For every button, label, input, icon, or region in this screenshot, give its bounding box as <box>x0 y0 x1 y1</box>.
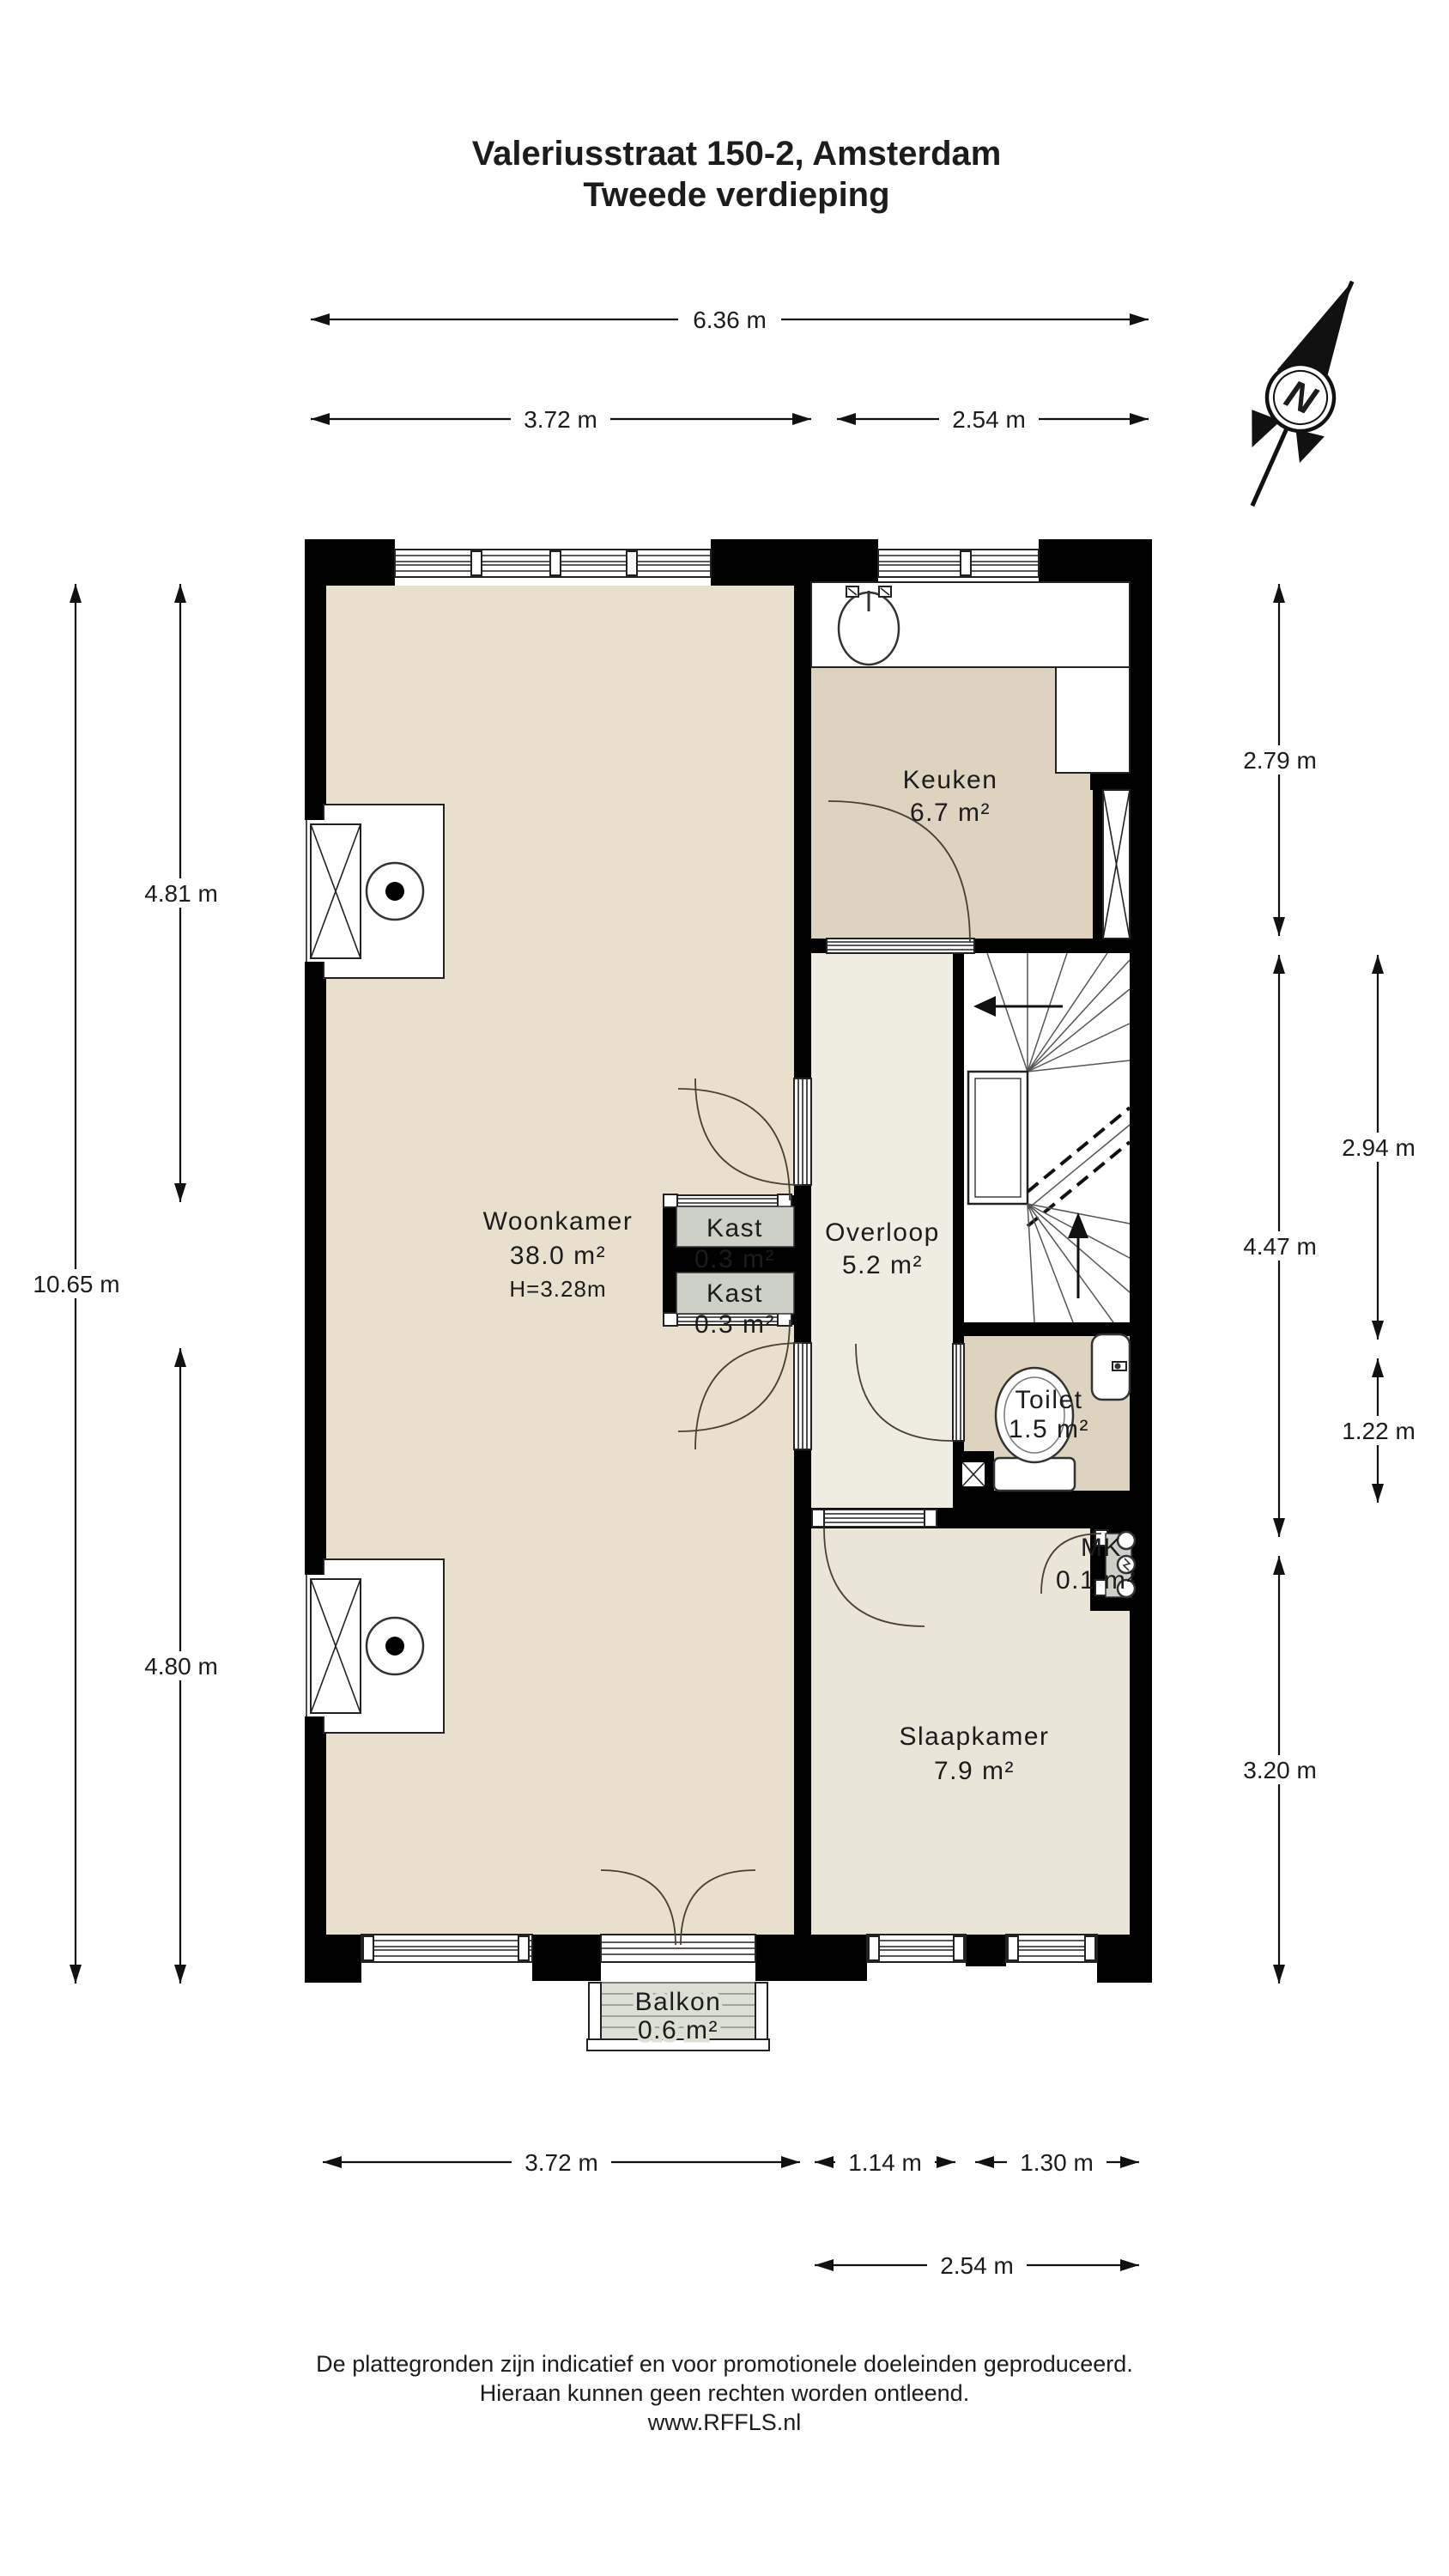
window-top-left <box>395 550 711 577</box>
vent-box <box>962 1462 985 1486</box>
page-title: Valeriusstraat 150-2, Amsterdam Tweede v… <box>472 135 1002 214</box>
chimney-upper <box>306 805 444 978</box>
label-overloop-area: 5.2 m² <box>842 1251 923 1279</box>
title-line2: Tweede verdieping <box>583 176 889 214</box>
label-mk-area: 0.1 m² <box>1056 1566 1137 1595</box>
balcony-rail-right <box>755 1983 767 2046</box>
floorplan-canvas: Valeriusstraat 150-2, Amsterdam Tweede v… <box>0 0 1449 2576</box>
dim-top-left: 3.72 m <box>524 406 597 433</box>
dim-top-total: 6.36 m <box>693 307 767 333</box>
label-keuken: Keuken <box>903 766 998 794</box>
kitchen-cabinet <box>1056 667 1130 773</box>
dim-bottom-middle: 1.14 m <box>848 2149 922 2176</box>
shaft-right <box>1103 790 1130 939</box>
footer-line3: www.RFFLS.nl <box>647 2409 802 2435</box>
dim-left-upper: 4.81 m <box>144 880 218 907</box>
dim-bottom-left: 3.72 m <box>524 2149 598 2176</box>
label-overloop: Overloop <box>825 1218 940 1247</box>
label-kast-lower-area: 0.3 m² <box>694 1310 775 1339</box>
window-bottom-right <box>1006 1935 1097 1962</box>
woonkamer-upper-door-opening <box>794 1078 811 1185</box>
label-balkon-area: 0.6 m² <box>638 2016 718 2044</box>
dim-right-upper: 2.79 m <box>1243 747 1317 774</box>
dim-right-middle: 4.47 m <box>1243 1233 1317 1260</box>
label-woonkamer-area: 38.0 m² <box>510 1242 606 1270</box>
label-balkon: Balkon <box>635 1988 722 2016</box>
woonkamer-lower-door-opening <box>794 1343 811 1449</box>
slaapkamer-door-opening <box>812 1510 937 1527</box>
dim-top-right: 2.54 m <box>952 406 1026 433</box>
footer-disclaimer: De plattegronden zijn indicatief en voor… <box>316 2351 1133 2435</box>
label-toilet: Toilet <box>1015 1386 1082 1414</box>
stair-void <box>968 1072 1028 1204</box>
footer-line2: Hieraan kunnen geen rechten worden ontle… <box>480 2380 969 2406</box>
label-kast-lower: Kast <box>706 1279 763 1308</box>
label-woonkamer: Woonkamer <box>483 1207 634 1236</box>
label-toilet-area: 1.5 m² <box>1009 1415 1089 1443</box>
dim-left-total: 10.65 m <box>33 1271 119 1297</box>
footer-line1: De plattegronden zijn indicatief en voor… <box>316 2351 1133 2377</box>
chimney-lower <box>306 1559 444 1733</box>
title-line1: Valeriusstraat 150-2, Amsterdam <box>472 135 1002 173</box>
balcony-rail-left <box>589 1983 601 2046</box>
flue-dot <box>385 882 404 901</box>
balcony-door-threshold <box>601 1935 755 1962</box>
window-top-right <box>878 550 1039 577</box>
toilet-door-opening <box>953 1344 964 1441</box>
dim-bottom-total: 2.54 m <box>940 2252 1014 2279</box>
window-bottom-left <box>361 1935 532 1962</box>
window-bottom-mid <box>867 1935 966 1962</box>
label-keuken-area: 6.7 m² <box>910 799 991 827</box>
label-woonkamer-height: H=3.28m <box>509 1276 606 1302</box>
compass-north-icon: N <box>1216 265 1387 521</box>
dim-right-inner-upper: 2.94 m <box>1342 1134 1416 1161</box>
label-kast-upper: Kast <box>706 1214 763 1242</box>
label-kast-upper-area: 0.3 m² <box>694 1245 775 1273</box>
label-slaapkamer: Slaapkamer <box>899 1722 1049 1751</box>
flue-dot <box>385 1637 404 1656</box>
label-mk: MK <box>1081 1534 1122 1562</box>
dim-right-lower: 3.20 m <box>1243 1757 1317 1783</box>
dim-left-lower: 4.80 m <box>144 1653 218 1680</box>
dim-bottom-right: 1.30 m <box>1020 2149 1094 2176</box>
dim-right-inner-lower: 1.22 m <box>1342 1418 1416 1444</box>
label-slaapkamer-area: 7.9 m² <box>934 1757 1015 1785</box>
keuken-door-opening <box>827 939 974 953</box>
toilet-sink <box>1092 1334 1130 1400</box>
